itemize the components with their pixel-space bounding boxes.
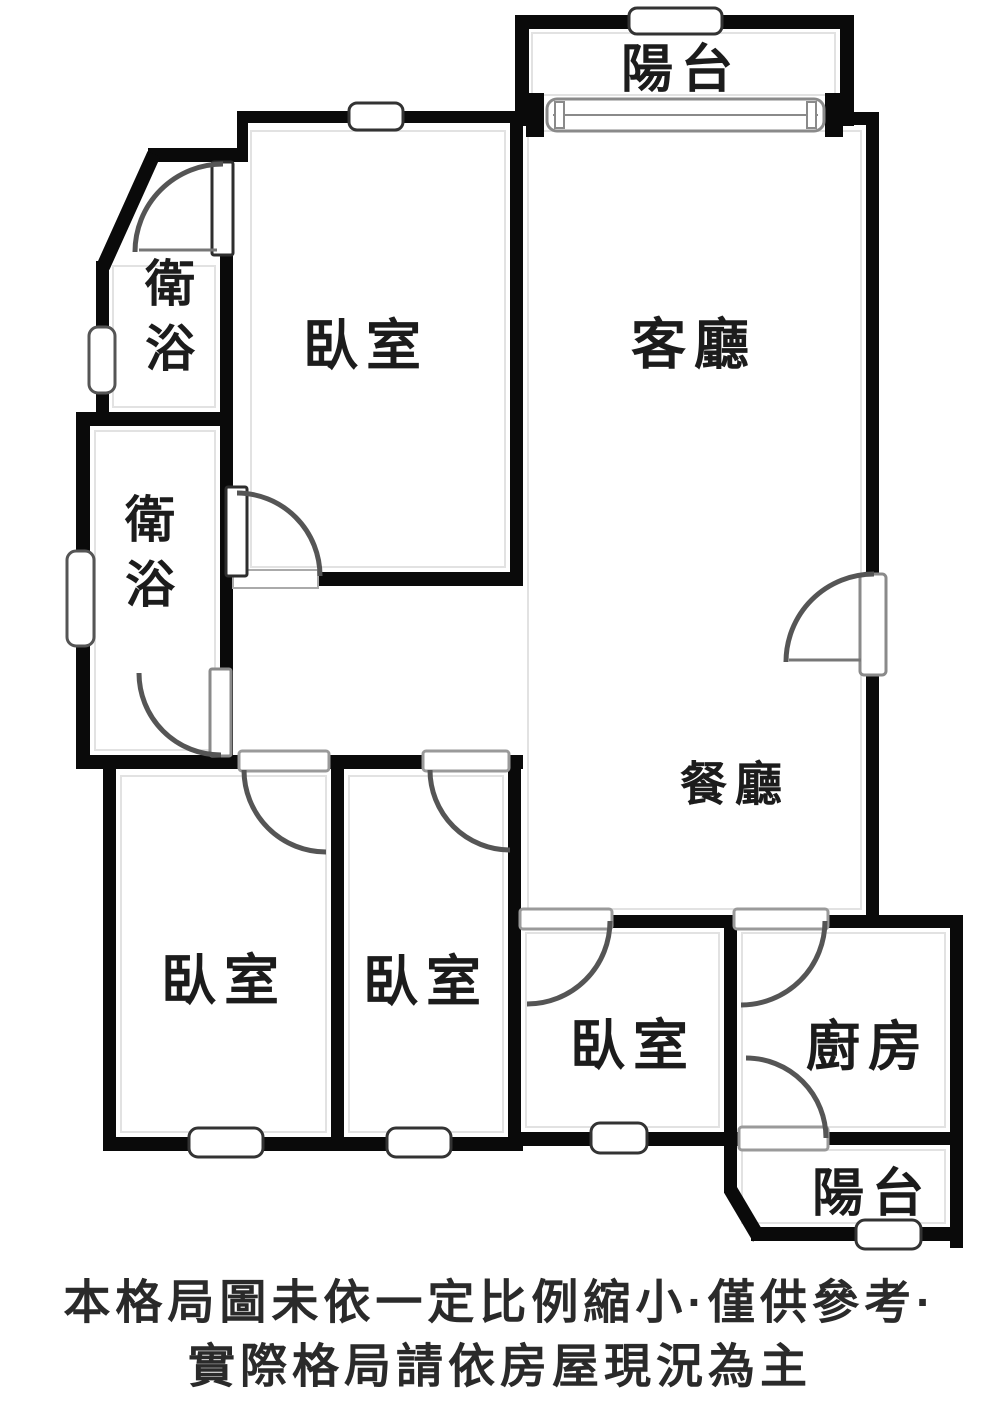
wall-bath2-top <box>76 412 232 426</box>
window-balcony-top <box>629 8 722 34</box>
door-leaf-kitchen <box>734 909 828 929</box>
room-label-bedroom-small: 臥室 <box>562 1019 696 1074</box>
wall-divider-bedrooms-1 <box>331 755 344 1151</box>
door-chords <box>139 250 861 660</box>
door-arc-bedroom-master <box>237 493 320 576</box>
door-leaf-bedroom-middle <box>423 751 509 771</box>
sliding-door <box>547 99 824 131</box>
door-leaf-bathroom-lower <box>210 669 231 756</box>
window-bathroom-upper <box>89 327 115 393</box>
wall-slidingdoor-post-left <box>526 93 544 137</box>
door-leaf-living-room <box>860 574 886 675</box>
wall-kitchen-right <box>950 915 963 1248</box>
window-bedroom-middle <box>387 1128 451 1157</box>
window-bedroom-small <box>591 1123 647 1153</box>
disclaimer-line-1: 本格局圖未依一定比例縮小·僅供參考· <box>63 1279 936 1326</box>
room-label-living-room: 客廳 <box>623 318 757 373</box>
door-leaf-bedroom-left <box>239 751 329 771</box>
wall-divider-bedrooms-2 <box>508 755 521 1151</box>
room-label-balcony-bottom: 陽台 <box>804 1168 932 1220</box>
sliding-door-tick-left <box>555 102 564 128</box>
room-label-bedroom-left: 臥室 <box>153 954 287 1009</box>
room-label-balcony-top: 陽台 <box>613 44 741 96</box>
door-leaf-bedroom-small <box>520 909 612 929</box>
room-label-dining-room: 餐廳 <box>672 761 790 808</box>
disclaimer-line-2: 實際格局請依房屋現況為主 <box>188 1343 812 1390</box>
wall-bedroom-master-right <box>510 112 523 586</box>
room-label-bedroom-middle: 臥室 <box>355 955 489 1010</box>
wall-bedroom-left-outer <box>103 755 116 1151</box>
room-label-bathroom-upper: 衛浴 <box>141 257 191 387</box>
door-leaf-bathroom-upper <box>212 162 233 255</box>
floorplan-canvas: 陽台 臥室 客廳 衛浴 衛浴 餐廳 臥室 臥室 臥室 廚房 陽台 本格局圖未依一… <box>0 0 1000 1402</box>
door-leaf-kitchen-balcony <box>739 1127 828 1150</box>
door-leaf-bedroom-master <box>226 487 247 576</box>
wall-bottom-left <box>103 1137 523 1151</box>
window-balcony-bottom <box>856 1220 921 1249</box>
wall-slidingdoor-post-right <box>825 93 843 137</box>
sliding-door-tick-right <box>807 102 816 128</box>
room-label-bathroom-lower: 衛浴 <box>121 493 171 623</box>
wall-topleft-horiz <box>148 148 248 162</box>
room-label-kitchen: 廚房 <box>798 1020 930 1074</box>
wall-right-upper <box>866 112 879 578</box>
window-bedroom-master <box>349 103 403 130</box>
room-label-bedroom-master: 臥室 <box>295 319 429 374</box>
wall-kitchen-left <box>724 915 737 1193</box>
window-bathroom-lower <box>67 551 94 646</box>
door-arc-bedroom-middle <box>430 770 510 850</box>
window-bedroom-left <box>189 1128 263 1157</box>
door-arc-bedroom-left <box>244 770 326 852</box>
wall-right-lower <box>866 672 879 928</box>
